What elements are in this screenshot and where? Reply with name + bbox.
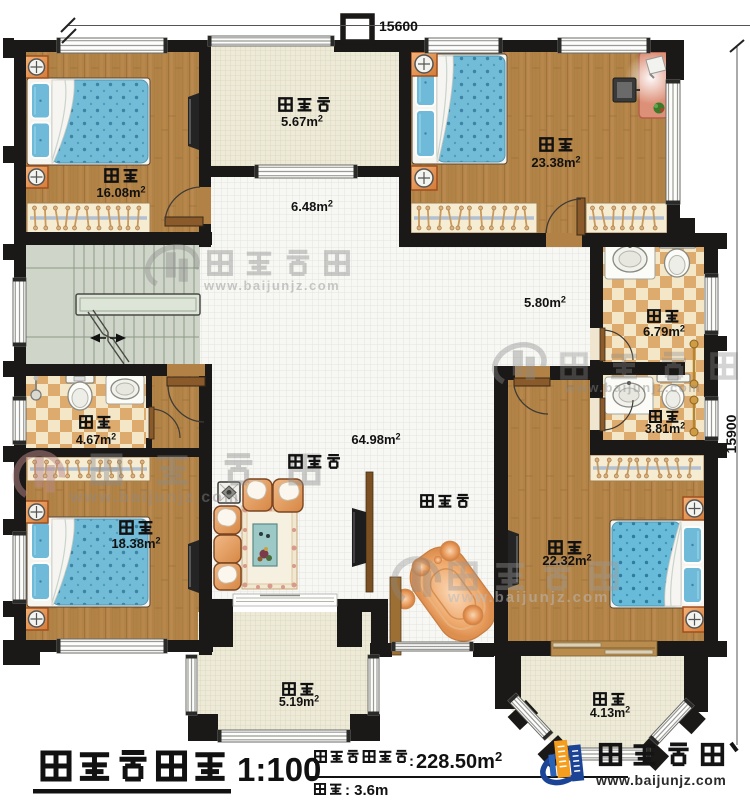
svg-text:: 3.6m: : 3.6m xyxy=(345,782,388,799)
svg-text:6.48m2: 6.48m2 xyxy=(291,198,333,214)
svg-text:18.38m2: 18.38m2 xyxy=(111,535,160,551)
svg-text:3.81m2: 3.81m2 xyxy=(645,421,685,436)
svg-text:23.38m2: 23.38m2 xyxy=(531,154,580,170)
svg-text:16.08m2: 16.08m2 xyxy=(96,184,145,200)
svg-text:www.baijunjz.com: www.baijunjz.com xyxy=(447,589,609,606)
svg-text:www.baijunjz.com: www.baijunjz.com xyxy=(203,278,340,293)
svg-text:www.baijunjz.com: www.baijunjz.com xyxy=(564,380,701,395)
svg-text:6.79m2: 6.79m2 xyxy=(643,323,685,339)
svg-text:4.67m2: 4.67m2 xyxy=(76,432,116,447)
svg-text:1:100: 1:100 xyxy=(237,751,321,788)
svg-text::: : xyxy=(409,753,414,770)
svg-text:15600: 15600 xyxy=(379,18,418,34)
svg-text:64.98m2: 64.98m2 xyxy=(351,431,400,447)
svg-text:15900: 15900 xyxy=(723,414,739,453)
svg-text:5.80m2: 5.80m2 xyxy=(524,294,566,310)
svg-text:www.baijunjz.com: www.baijunjz.com xyxy=(69,489,240,506)
svg-text:5.19m2: 5.19m2 xyxy=(279,694,319,709)
svg-text:22.32m2: 22.32m2 xyxy=(542,552,591,568)
svg-text:4.13m2: 4.13m2 xyxy=(590,705,630,720)
svg-text:www.baijunjz.com: www.baijunjz.com xyxy=(595,772,726,788)
svg-text:5.67m2: 5.67m2 xyxy=(281,113,323,129)
svg-text:228.50m2: 228.50m2 xyxy=(416,749,502,773)
